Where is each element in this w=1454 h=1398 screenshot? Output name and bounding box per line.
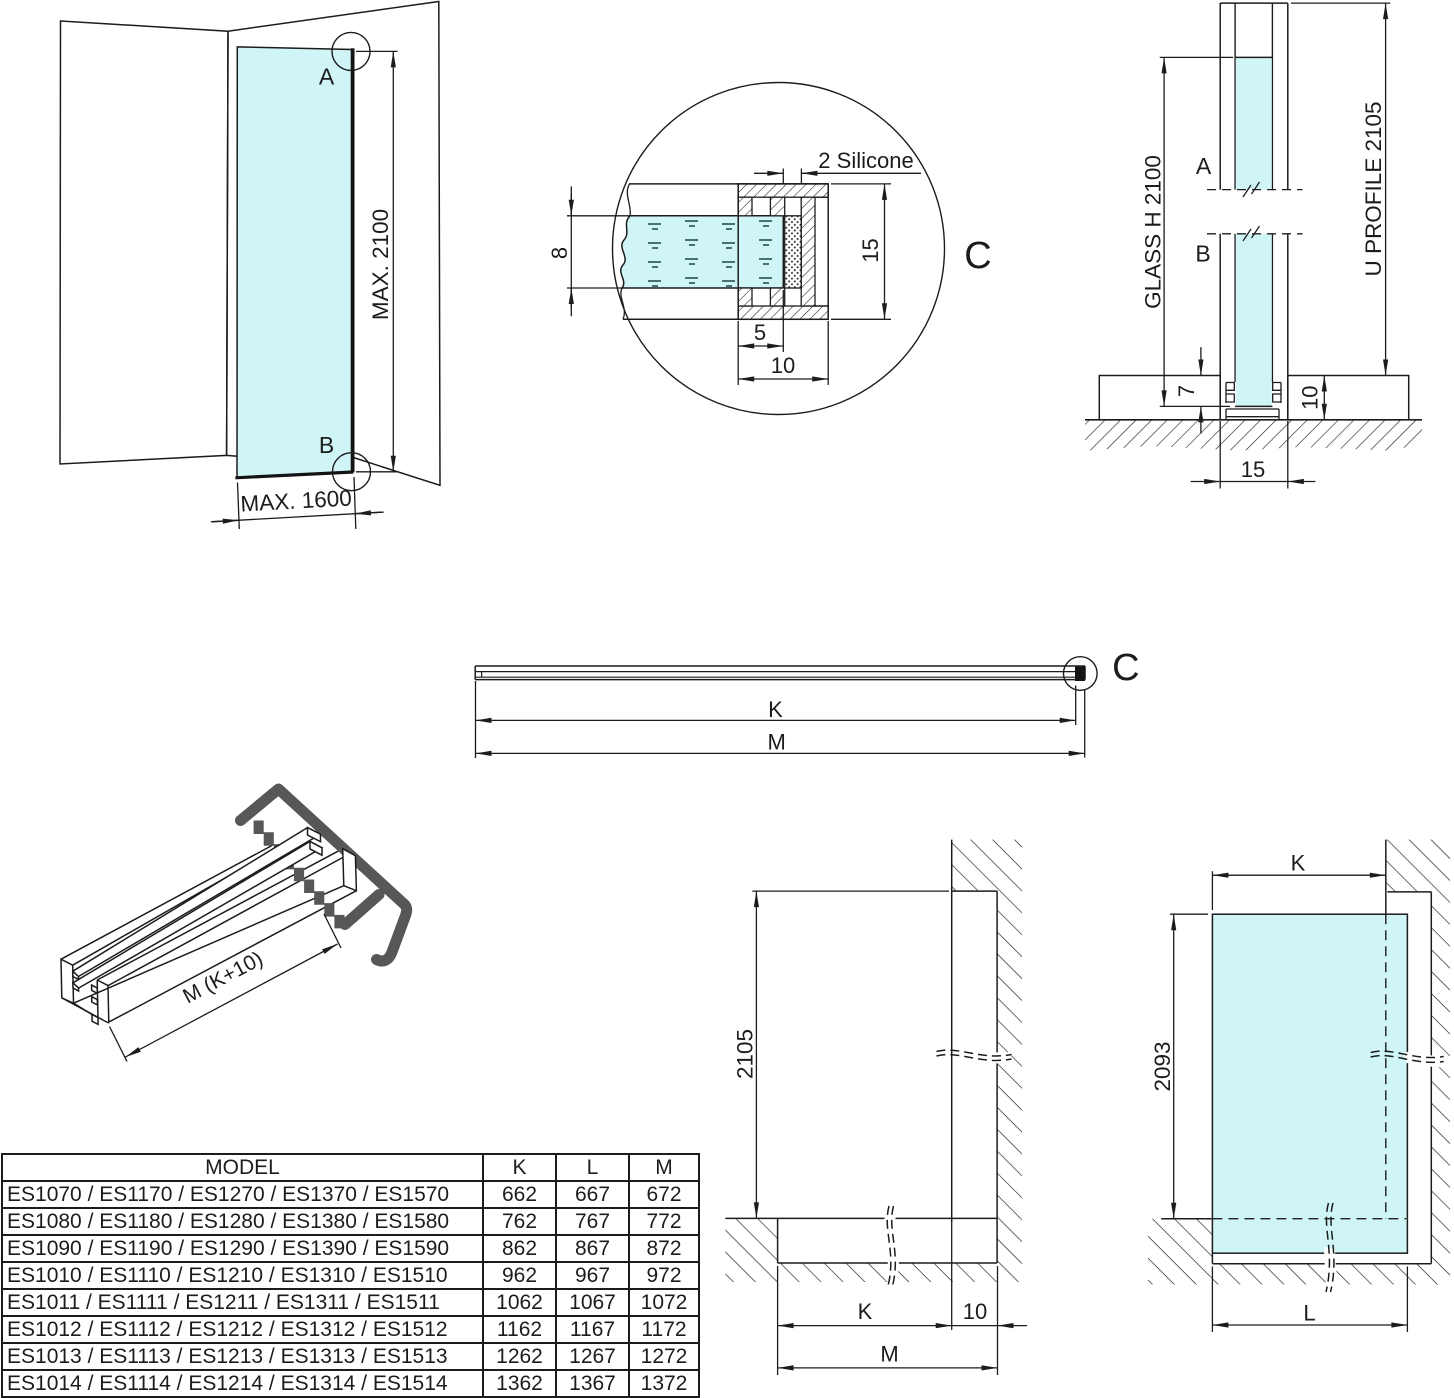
svg-text:2105: 2105: [733, 1029, 758, 1079]
svg-text:K: K: [1291, 851, 1306, 876]
svg-text:L: L: [1303, 1301, 1315, 1326]
svg-text:GLASS H 2100: GLASS H 2100: [1141, 155, 1166, 309]
svg-text:2093: 2093: [1150, 1041, 1175, 1091]
svg-text:B: B: [319, 432, 334, 458]
svg-text:C: C: [964, 235, 991, 277]
svg-text:U PROFILE 2105: U PROFILE 2105: [1361, 101, 1386, 276]
svg-text:MAX. 2100: MAX. 2100: [368, 209, 393, 320]
svg-text:7: 7: [1174, 385, 1199, 397]
svg-text:15: 15: [858, 238, 883, 262]
svg-text:K: K: [858, 1299, 873, 1324]
svg-text:MAX. 1600: MAX. 1600: [240, 485, 353, 516]
svg-text:C: C: [1112, 647, 1139, 689]
svg-text:5: 5: [754, 320, 766, 345]
svg-text:M: M: [880, 1342, 898, 1367]
svg-text:2 Silicone: 2 Silicone: [818, 148, 913, 173]
svg-text:10: 10: [963, 1299, 987, 1324]
svg-text:M: M: [768, 730, 786, 755]
svg-text:A: A: [1196, 153, 1212, 179]
svg-text:K: K: [768, 697, 783, 722]
svg-text:15: 15: [1241, 457, 1265, 482]
svg-text:B: B: [1195, 241, 1210, 267]
svg-text:10: 10: [1298, 385, 1323, 409]
svg-text:10: 10: [771, 353, 795, 378]
svg-text:A: A: [319, 64, 335, 90]
svg-text:8: 8: [547, 247, 572, 259]
